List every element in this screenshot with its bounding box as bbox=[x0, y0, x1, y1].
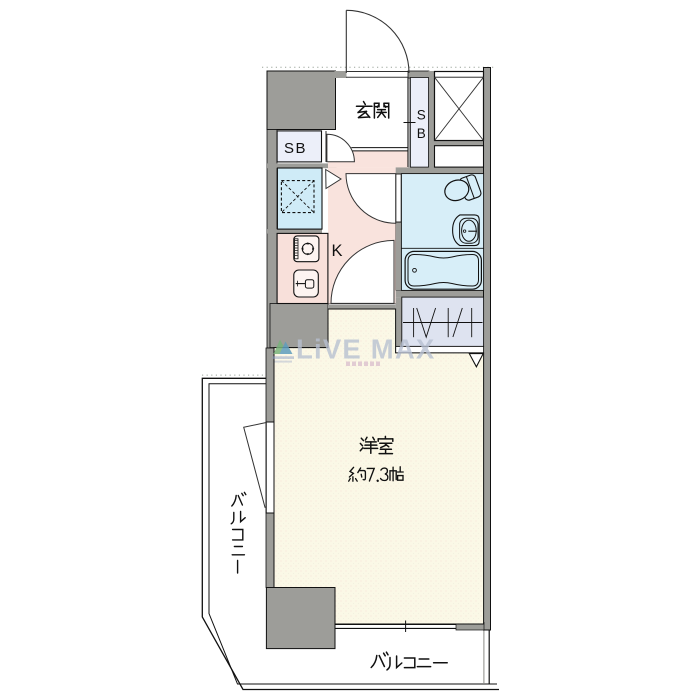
svg-text:B: B bbox=[417, 126, 426, 141]
svg-text:S: S bbox=[417, 108, 426, 123]
svg-text:K: K bbox=[332, 242, 343, 260]
svg-text:SB: SB bbox=[284, 140, 307, 157]
svg-text:LiVE MAX: LiVE MAX bbox=[296, 334, 435, 365]
